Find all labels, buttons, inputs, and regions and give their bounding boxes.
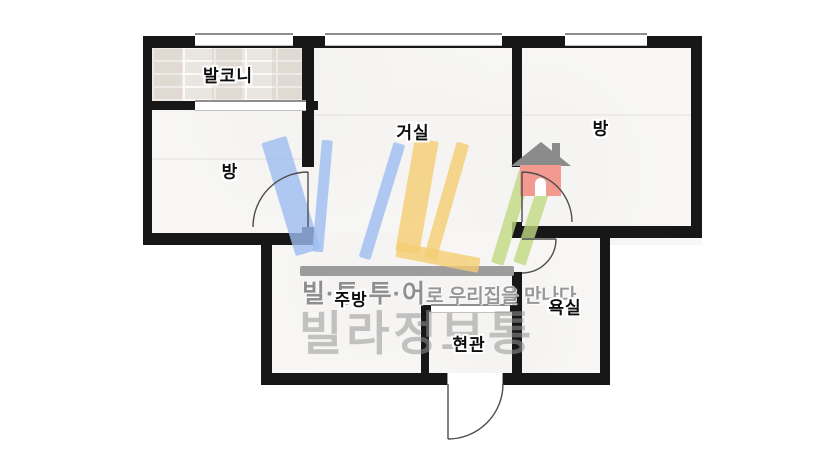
- label-room-right: 방: [593, 115, 610, 140]
- label-bathroom: 욕실: [548, 294, 581, 319]
- label-balcony: 발코니: [203, 62, 253, 87]
- label-room-left: 방: [222, 158, 239, 183]
- label-kitchen: 주방: [334, 286, 367, 311]
- door-swing-left-room-icon: [253, 172, 308, 227]
- label-living: 거실: [396, 119, 429, 144]
- door-swing-symbols: [0, 0, 840, 472]
- door-swing-entrance-icon: [448, 384, 503, 439]
- floorplan-canvas: 발코니 방 거실 방 주방 현관 욕실 빌·투·투·어로 우리집을 만나다 빌라…: [0, 0, 840, 472]
- door-swing-bathroom-icon: [522, 239, 556, 273]
- label-entrance: 현관: [452, 331, 485, 356]
- door-swing-right-room-icon: [522, 172, 572, 222]
